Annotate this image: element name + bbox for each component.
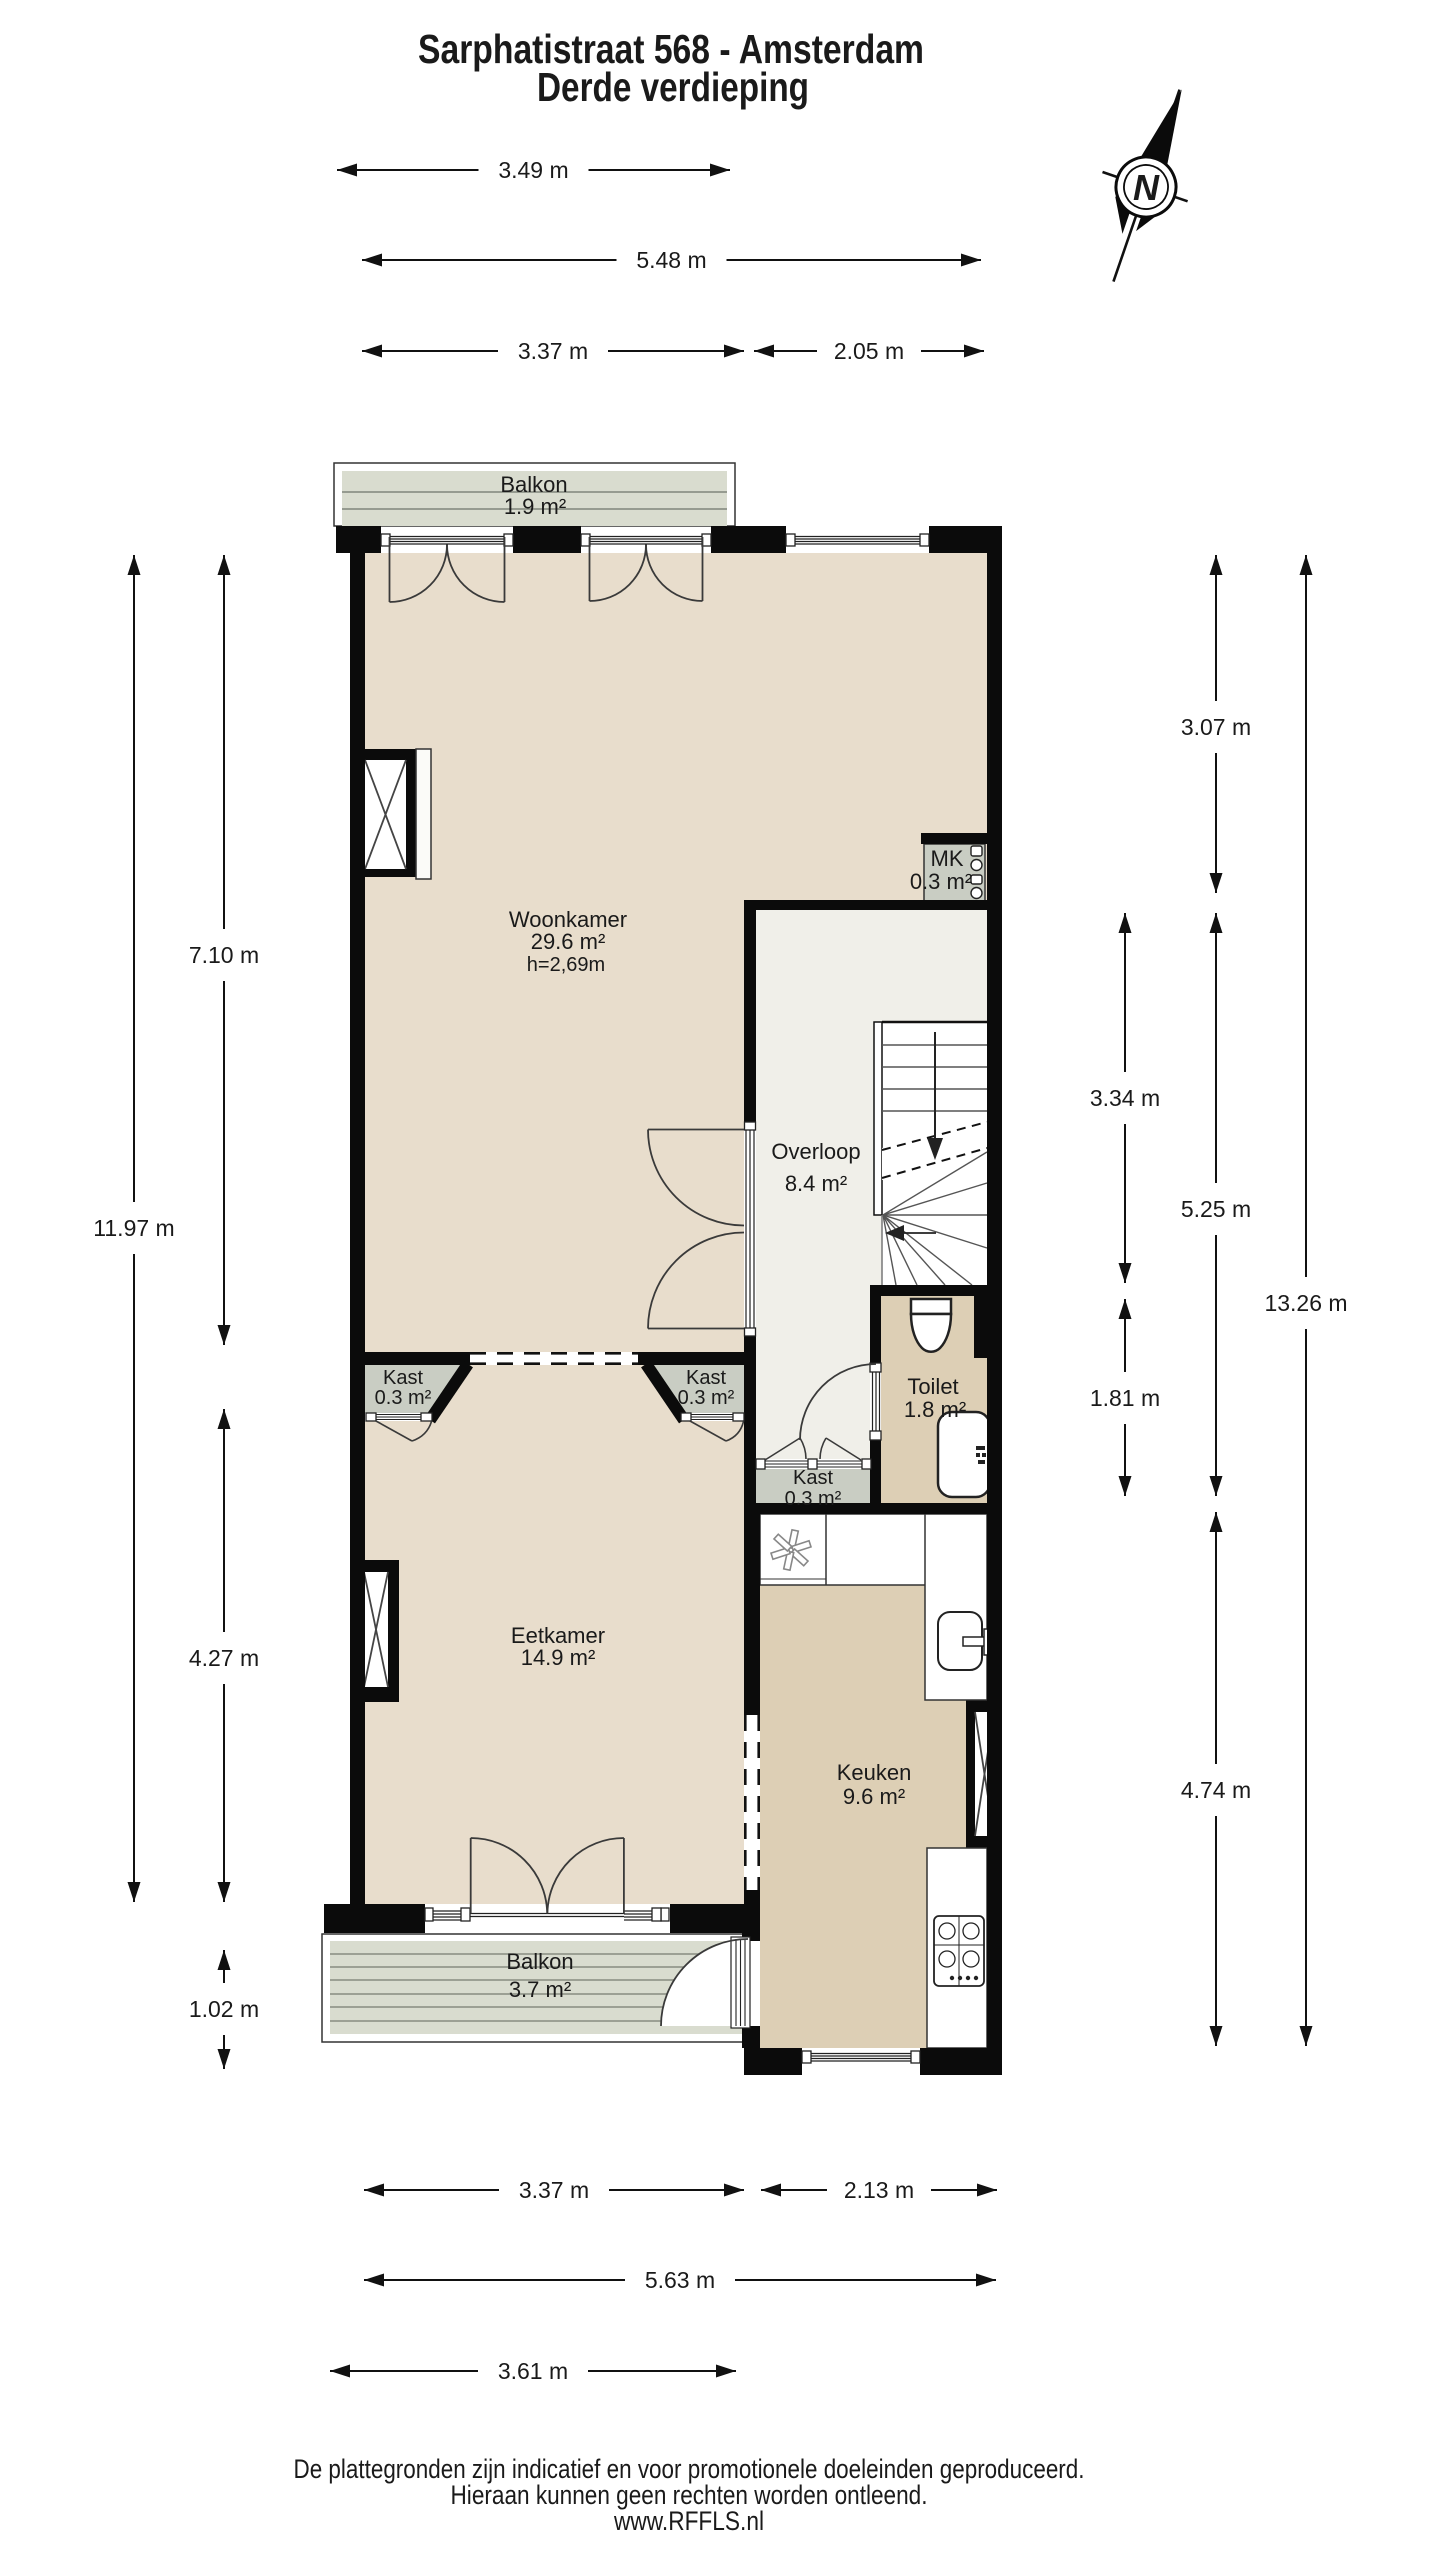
svg-text:3.7 m²: 3.7 m² [509,1977,571,2002]
svg-text:Overloop: Overloop [771,1139,860,1164]
svg-text:11.97 m: 11.97 m [93,1215,174,1241]
svg-text:Kast: Kast [686,1367,726,1389]
svg-text:13.26 m: 13.26 m [1264,1290,1347,1316]
svg-text:2.13 m: 2.13 m [844,2177,914,2203]
svg-text:4.27 m: 4.27 m [189,1645,259,1671]
svg-text:0.3 m²: 0.3 m² [375,1387,432,1409]
svg-text:1.81 m: 1.81 m [1090,1385,1160,1411]
svg-text:3.37 m: 3.37 m [518,338,588,364]
svg-text:5.25 m: 5.25 m [1181,1196,1251,1222]
svg-text:Kast: Kast [793,1467,833,1489]
svg-text:N: N [1133,167,1160,208]
svg-text:0.3 m²: 0.3 m² [785,1488,842,1510]
svg-text:5.48 m: 5.48 m [636,247,706,273]
svg-text:9.6 m²: 9.6 m² [843,1784,905,1809]
svg-text:8.4 m²: 8.4 m² [785,1171,847,1196]
svg-text:0.3 m²: 0.3 m² [678,1387,735,1409]
svg-text:1.9 m²: 1.9 m² [504,494,566,519]
svg-text:4.74 m: 4.74 m [1181,1777,1251,1803]
svg-text:3.61 m: 3.61 m [498,2358,568,2384]
svg-text:29.6 m²: 29.6 m² [531,929,606,954]
svg-text:www.RFFLS.nl: www.RFFLS.nl [613,2506,764,2536]
svg-text:3.49 m: 3.49 m [498,157,568,183]
svg-text:14.9 m²: 14.9 m² [521,1645,596,1670]
svg-text:1.8 m²: 1.8 m² [904,1397,966,1422]
svg-text:5.63 m: 5.63 m [645,2267,715,2293]
svg-text:3.07 m: 3.07 m [1181,714,1251,740]
svg-text:Keuken: Keuken [837,1760,912,1785]
svg-text:Balkon: Balkon [506,1949,573,1974]
svg-text:Toilet: Toilet [907,1374,958,1399]
svg-text:3.37 m: 3.37 m [519,2177,589,2203]
svg-text:0.3 m²: 0.3 m² [910,869,972,894]
svg-text:1.02 m: 1.02 m [189,1996,259,2022]
svg-text:h=2,69m: h=2,69m [527,954,605,976]
svg-text:Derde verdieping: Derde verdieping [537,64,809,110]
svg-text:2.05 m: 2.05 m [834,338,904,364]
svg-text:MK: MK [931,846,964,871]
svg-text:3.34 m: 3.34 m [1090,1085,1160,1111]
svg-text:7.10 m: 7.10 m [189,942,259,968]
svg-text:Kast: Kast [383,1367,423,1389]
